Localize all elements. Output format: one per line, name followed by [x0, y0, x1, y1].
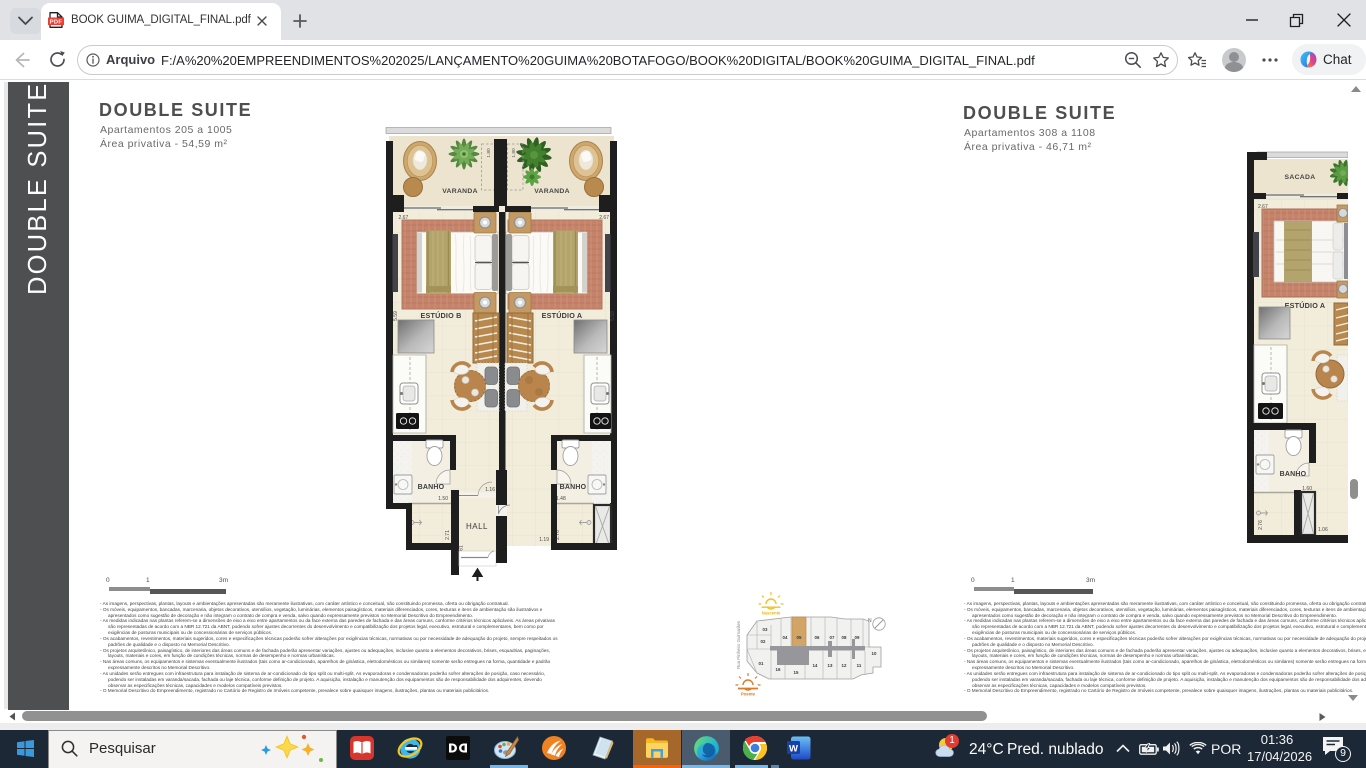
svg-text:1.80: 1.80 [511, 148, 517, 158]
svg-text:09: 09 [855, 635, 860, 640]
svg-text:N: N [868, 618, 872, 624]
svg-text:SACADA: SACADA [1285, 174, 1316, 181]
svg-text:BANHO: BANHO [1280, 471, 1307, 478]
svg-text:ESTÚDIO A: ESTÚDIO A [542, 311, 583, 320]
svg-text:PDF: PDF [50, 19, 63, 25]
svg-text:5.59: 5.59 [610, 311, 616, 321]
svg-text:1.06: 1.06 [1318, 527, 1328, 533]
svg-text:04: 04 [783, 635, 788, 640]
svg-text:06: 06 [815, 635, 820, 640]
svg-text:11: 11 [857, 663, 862, 668]
svg-text:ESTÚDIO A: ESTÚDIO A [1285, 301, 1326, 310]
svg-text:1.48: 1.48 [556, 496, 566, 502]
svg-text:15: 15 [794, 670, 799, 675]
svg-text:Rua Pinheiro Guimarães: Rua Pinheiro Guimarães [736, 620, 741, 669]
svg-text:1.16: 1.16 [485, 487, 495, 493]
svg-text:05: 05 [797, 635, 802, 640]
svg-text:1.50: 1.50 [438, 496, 448, 502]
svg-text:2.67: 2.67 [399, 215, 409, 221]
svg-text:03: 03 [763, 627, 768, 632]
svg-text:13: 13 [828, 663, 833, 668]
svg-text:02: 02 [761, 639, 766, 644]
svg-text:2.67: 2.67 [599, 215, 609, 221]
svg-text:ESTÚDIO B: ESTÚDIO B [421, 311, 462, 320]
svg-text:Nascente: Nascente [762, 611, 781, 616]
svg-text:HALL: HALL [466, 522, 488, 531]
svg-text:12: 12 [842, 663, 847, 668]
svg-text:W: W [789, 744, 798, 755]
svg-text:08: 08 [842, 635, 847, 640]
svg-text:5.59: 5.59 [393, 311, 399, 321]
svg-text:Poente: Poente [741, 692, 756, 697]
svg-text:10: 10 [872, 651, 877, 656]
svg-text:2.71: 2.71 [445, 530, 451, 540]
svg-text:2.76: 2.76 [1258, 520, 1264, 530]
svg-text:1.19: 1.19 [539, 537, 549, 543]
svg-text:VARANDA: VARANDA [534, 188, 570, 195]
svg-text:1.80: 1.80 [486, 148, 492, 158]
svg-text:14: 14 [813, 663, 818, 668]
svg-text:01: 01 [759, 661, 764, 666]
svg-text:BANHO: BANHO [418, 484, 445, 491]
svg-text:16: 16 [776, 667, 781, 672]
svg-text:VARANDA: VARANDA [442, 188, 478, 195]
svg-text:BANHO: BANHO [560, 484, 587, 491]
svg-text:07: 07 [830, 635, 835, 640]
